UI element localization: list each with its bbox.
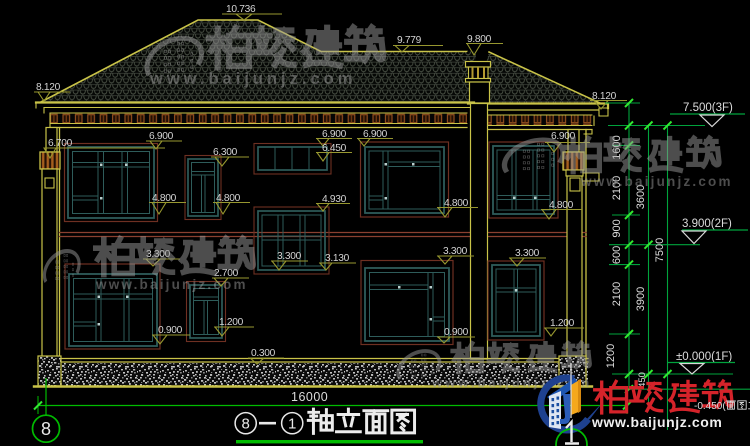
svg-text:900: 900 bbox=[611, 219, 623, 237]
svg-text:±0.000(1F): ±0.000(1F) bbox=[676, 351, 732, 363]
svg-text:8.120: 8.120 bbox=[36, 82, 61, 93]
svg-text:7500: 7500 bbox=[654, 238, 666, 262]
svg-text:0.900: 0.900 bbox=[444, 327, 469, 338]
svg-text:9.800: 9.800 bbox=[467, 34, 492, 45]
svg-text:-0.450(: -0.450( bbox=[694, 401, 726, 412]
svg-text:8: 8 bbox=[242, 416, 250, 433]
svg-text:3.130: 3.130 bbox=[325, 253, 350, 264]
svg-text:4.800: 4.800 bbox=[549, 200, 574, 211]
svg-text:4.800: 4.800 bbox=[444, 198, 469, 209]
svg-text:1200: 1200 bbox=[605, 344, 617, 368]
svg-text:6.300: 6.300 bbox=[213, 147, 238, 158]
svg-text:www.baijunjz.com: www.baijunjz.com bbox=[95, 277, 248, 292]
svg-text:4.800: 4.800 bbox=[216, 193, 241, 204]
svg-text:7.500(3F): 7.500(3F) bbox=[683, 102, 733, 114]
svg-text:www.baijunjz.com: www.baijunjz.com bbox=[149, 70, 356, 88]
svg-text:www.baijunjz.com: www.baijunjz.com bbox=[580, 174, 733, 189]
svg-text:6.900: 6.900 bbox=[149, 131, 174, 142]
svg-text:3.900(2F): 3.900(2F) bbox=[682, 218, 732, 230]
svg-text:3.300: 3.300 bbox=[443, 246, 468, 257]
svg-text:0.300: 0.300 bbox=[251, 348, 276, 359]
svg-text:0.900: 0.900 bbox=[158, 325, 183, 336]
svg-text:6.900: 6.900 bbox=[322, 129, 347, 140]
svg-text:1: 1 bbox=[288, 416, 296, 433]
svg-text:6.450: 6.450 bbox=[322, 143, 347, 154]
svg-text:6.700: 6.700 bbox=[48, 138, 73, 149]
svg-text:16000: 16000 bbox=[291, 390, 328, 404]
svg-text:6.900: 6.900 bbox=[363, 129, 388, 140]
svg-text:10.736: 10.736 bbox=[226, 4, 256, 15]
svg-text:3.300: 3.300 bbox=[515, 248, 540, 259]
svg-text:8.120: 8.120 bbox=[592, 91, 617, 102]
svg-text:2100: 2100 bbox=[611, 282, 623, 306]
svg-text:1.200: 1.200 bbox=[550, 318, 575, 329]
svg-text:www.baijunjz.com: www.baijunjz.com bbox=[591, 414, 722, 430]
svg-text:1.200: 1.200 bbox=[219, 317, 244, 328]
svg-text:4.930: 4.930 bbox=[322, 194, 347, 205]
svg-text:450: 450 bbox=[637, 372, 648, 388]
svg-text:3.300: 3.300 bbox=[277, 251, 302, 262]
svg-text:9.779: 9.779 bbox=[397, 35, 422, 46]
svg-text:600: 600 bbox=[611, 246, 623, 264]
svg-text:3900: 3900 bbox=[635, 287, 647, 311]
svg-text:8: 8 bbox=[41, 419, 51, 439]
svg-text:4.800: 4.800 bbox=[152, 193, 177, 204]
